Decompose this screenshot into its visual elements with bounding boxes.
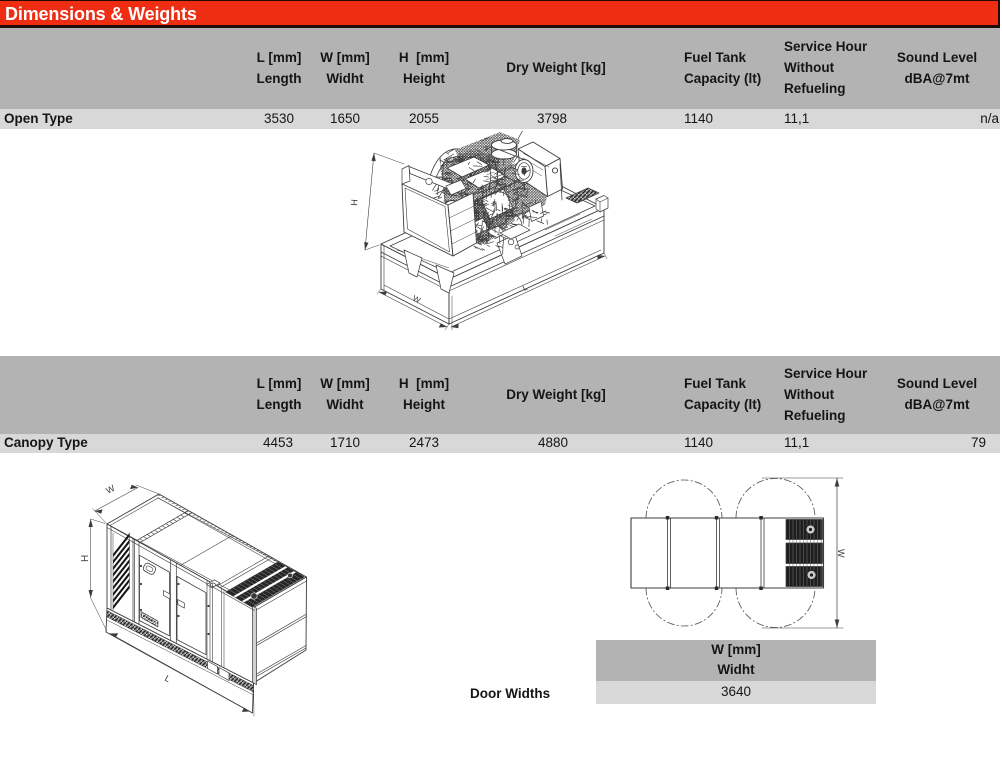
svg-text:L: L xyxy=(163,673,172,684)
svg-text:H: H xyxy=(349,199,360,206)
svg-text:H: H xyxy=(80,555,91,562)
svg-text:W: W xyxy=(104,483,117,496)
svg-text:W: W xyxy=(836,549,846,558)
